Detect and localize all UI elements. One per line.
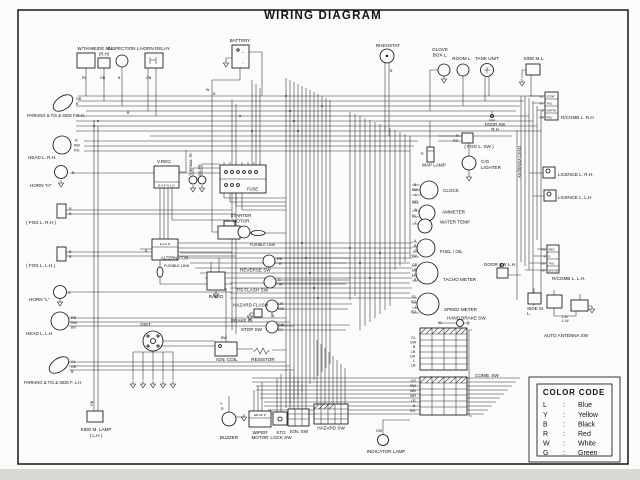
ammeter-gauge (419, 205, 435, 221)
speedometer-gauge (417, 293, 439, 315)
label-stop-sw: STOP SW (241, 327, 263, 332)
rcomb-rh-code: GB (539, 95, 543, 99)
distributor-symbol (143, 331, 163, 351)
wire-code: L (415, 305, 417, 309)
label-fusible-link-a: FUSIBLE LINK (250, 243, 276, 247)
label-oil-pr: OIL PR. (198, 163, 202, 176)
rcomb-lh-code: B (544, 255, 546, 259)
horn-h-symbol (55, 166, 68, 179)
color-code-legend: COLOR CODE L : Blue Y : Yellow B : Black… (529, 377, 620, 462)
label-licence-lh: LICENCE L. L.H (558, 195, 591, 200)
tachometer-gauge (416, 262, 438, 284)
wire-code: WR (410, 394, 416, 398)
wire-code: Y (220, 402, 223, 406)
wire-code: YW (411, 254, 417, 258)
color-code-colon: : (563, 450, 565, 457)
label-room-l: ROOM L. (452, 56, 471, 61)
wire-junctions (93, 95, 381, 299)
wire-code: R (75, 139, 78, 143)
wire-code: LB (412, 268, 417, 272)
rcomb-lh-code: GR (541, 269, 545, 273)
color-code-key: B (543, 422, 548, 429)
wire-code: GB (100, 76, 106, 80)
wire-code: R (279, 262, 282, 266)
color-code-value: Green (578, 450, 598, 457)
label-side-m-lamp-2: ( L.H ) (90, 433, 103, 438)
hand-brake-sw-symbol (457, 320, 464, 327)
fusible-link-b-symbol (157, 267, 163, 277)
door-sw-lh-symbol (497, 268, 508, 278)
label-speed: SPEED METER (444, 307, 478, 312)
label-ts-flash-sw: T/S FLASH SW (236, 288, 269, 293)
label-reverse-sw: REVERSE SW (240, 268, 271, 273)
wire-code: GW (278, 307, 285, 311)
label-dist: DIST. (140, 322, 151, 327)
ground-icon (160, 381, 165, 388)
label-horn-h: HORN "H" (30, 183, 52, 188)
wire-code: YL (438, 321, 442, 325)
ground-icon (241, 414, 246, 421)
label-side-ml-bot-2: L. (527, 311, 531, 316)
ground-icon (519, 79, 524, 86)
wire-code: LG (412, 273, 417, 277)
wire-code: LR (411, 399, 416, 403)
label-fog-lh: ( FOG L. L.H.) (26, 263, 56, 268)
wire-code: GW (278, 323, 285, 327)
ground-icon (130, 381, 135, 388)
wire-code: Y (414, 239, 417, 243)
label-fuel-oil: FUEL / OIL (440, 249, 463, 254)
label-tank-unit: TANK UNIT (475, 56, 499, 61)
label-map-lamp: MAP LAMP (422, 163, 446, 168)
comb-sw-grid-1 (420, 328, 467, 370)
label-fusible-link-b: FUSIBLE LINK (164, 264, 190, 268)
wire-code: R (456, 134, 459, 138)
ground-icon (140, 381, 145, 388)
label-parking-lh: PARKING & T/S & SIDE F. L.H (24, 380, 81, 385)
ground-icon (441, 76, 446, 83)
rcomb-lh-func: REV (549, 248, 555, 252)
glove-box-lamp (438, 64, 450, 76)
wire-code: GB (76, 97, 82, 101)
room-lamp (457, 64, 469, 76)
wire-code: RG (74, 149, 80, 153)
wire-code: BW (221, 336, 227, 340)
wire-code: RW (71, 321, 78, 325)
wire-code: B (413, 345, 416, 349)
label-water-temp: WATER TEMP (440, 220, 470, 225)
label-cg-2: LIGHTER (481, 165, 502, 170)
wire-code: B (213, 92, 216, 96)
wire-code: GY (411, 379, 417, 383)
label-buzzer: BUZZER (220, 435, 239, 440)
wire-code: RY (71, 326, 77, 330)
water-temp-gauge (418, 219, 432, 233)
parking-lamp-rh (50, 91, 75, 114)
label-hazard-flash: HAZARD FLASH (233, 303, 268, 308)
wire-code: R (69, 207, 72, 211)
wire-code: B (118, 76, 121, 80)
fuel-oil-gauge (417, 239, 435, 257)
label-resistor: RESISTOR (251, 357, 275, 362)
color-code-key: L (543, 402, 547, 409)
rcomb-rh-func: EARTH (547, 109, 557, 113)
label-side-ml-rh-sub: (R.H) (99, 52, 110, 57)
wire-code: GW (376, 429, 383, 433)
parking-lamp-lh (46, 353, 71, 376)
rcomb-lh-func: B/STOP (549, 269, 560, 273)
color-code-value: Black (578, 422, 596, 429)
wire-code: WR (412, 200, 418, 204)
rcomb-lh-code: GW (541, 262, 546, 266)
wire-code: WB (410, 389, 416, 393)
wire-code: GL (71, 360, 76, 364)
label-comb-sw: COMB. SW (475, 373, 499, 378)
label-brake-in: BRAKE IN (231, 318, 252, 323)
label-side-ml-top: SIDE M.L. (524, 56, 545, 61)
resistor-symbol (253, 348, 270, 354)
label-wiper-2: MOTOR (251, 435, 269, 440)
rcomb-rh-func: TAIL (547, 102, 553, 106)
fog-lamp-rh (57, 204, 66, 218)
wire-code: W (279, 283, 283, 287)
side-marker-lamp-box (87, 411, 103, 422)
label-inspection: INSPECTION L. (107, 46, 140, 51)
ign-sw-grid (288, 409, 309, 426)
label-rcomb-rh: R/COMB L. R.H (561, 115, 594, 120)
label-rcomb-lh: R/COMB L. L.H. (552, 276, 585, 281)
battery-plus: + (242, 50, 244, 54)
component-labels: W/TANK SIDE M.L. (R.H) INSPECTION L. HOR… (24, 38, 594, 454)
thermal-transmitter (189, 176, 197, 184)
label-ign-sw: IGN. SW (290, 429, 309, 434)
ground-icon (150, 381, 155, 388)
label-tacho: TACHO METER (443, 277, 477, 282)
label-glove-1: GLOVE (432, 47, 448, 52)
label-thermal-tr: THERMAL TR. (189, 152, 193, 176)
wire-code: RL (82, 76, 87, 80)
head-lamp-rh (53, 136, 71, 154)
ground-icon (170, 381, 175, 388)
rcomb-rh-func: STOP (547, 95, 555, 99)
ground-icon (190, 185, 195, 192)
wire-code: LW (410, 355, 416, 359)
map-lamp-box (427, 147, 434, 162)
color-code-value: White (578, 441, 596, 448)
label-fog-l-sw: ( FOG L. SW ) (464, 144, 494, 149)
wire-code: GR (71, 365, 77, 369)
label-glove-2: BOX L. (433, 53, 448, 58)
wire-code: B (145, 249, 148, 253)
label-head-lh: HEAD L. L.H (26, 331, 52, 336)
rcomb-rh-func: REV (547, 116, 553, 120)
label-stg-2: LOCK SW (270, 435, 292, 440)
side-ml-bot-box (528, 293, 541, 304)
starter-motor-body (218, 226, 240, 239)
label-starter-2: MOTOR (232, 219, 250, 224)
wire-code: RW (74, 144, 81, 148)
fog-lamp-lh (57, 247, 66, 261)
wire-code: W (414, 208, 418, 212)
label-parking-rh: PARKING & T/S & SIDE F.R.H. (27, 113, 85, 118)
label-hazard-sw: HAZARD SW (317, 426, 345, 431)
scan-edge-band (0, 469, 640, 480)
oil-pressure-sender (198, 176, 206, 184)
battery-minus: − (242, 61, 244, 65)
wire-code: RL (412, 214, 417, 218)
wiring-diagram-canvas: WIRING DIAGRAM (0, 0, 640, 480)
indicator-lamp-symbol (378, 435, 389, 446)
color-code-key: G (543, 450, 548, 457)
alternator-terminals: E A F N (160, 242, 171, 246)
auto-antenna-box-1 (547, 295, 562, 308)
wire-code: Y (414, 221, 417, 225)
label-horn-relay: HORN RELAY (140, 46, 170, 51)
wire-code: LB (411, 364, 416, 368)
buzzer-symbol (222, 412, 236, 426)
horn-l-symbol (54, 286, 67, 299)
wire-code: B (414, 244, 417, 248)
wire-code: GW (410, 341, 417, 345)
side-ml-top-box (526, 64, 540, 75)
rcomb-lh-code: RB (541, 248, 545, 252)
label-auto-antenna: AUTO ANTENNA SW (544, 333, 589, 338)
wire-code: RG (411, 300, 417, 304)
clock-gauge (420, 181, 438, 199)
wire-code: R (69, 255, 72, 259)
label-ammeter: AMMETER (442, 210, 466, 215)
brake-ind-box (254, 309, 262, 317)
wire-code: GB (90, 400, 94, 406)
wire-code: B (127, 111, 130, 115)
label-door-sw-rh-2: R.H (491, 127, 498, 132)
ignition-coil-box (215, 342, 237, 356)
head-lamp-lh (51, 312, 69, 330)
label-licence-rh: LICENCE L. R.H. (558, 172, 593, 177)
label-fog-rh: ( FOG L. R.H ) (26, 220, 56, 225)
color-code-key: R (543, 431, 548, 438)
label-door-sw-lh: DOOR SW L.H. (484, 262, 516, 267)
rcomb-rh-code: GR (539, 102, 543, 106)
label-alternator: ALTERNATOR (161, 256, 188, 261)
ground-icon (223, 60, 228, 67)
wire-code: RG (410, 409, 416, 413)
wire-code: L (415, 193, 417, 197)
cig-lighter-symbol (462, 156, 476, 170)
wire-code: B (390, 69, 393, 73)
wire-code: L-W (562, 319, 569, 323)
ground-icon (589, 306, 594, 313)
color-code-colon: : (563, 441, 565, 448)
label-horn-l: HORN "L" (29, 297, 50, 302)
wire-code: B (71, 370, 74, 374)
label-ign-coil: IGN. COIL (216, 357, 238, 362)
fog-lamp-sw-box (462, 133, 473, 143)
label-side-m-lamp-1: SIDE M. LAMP (81, 427, 112, 432)
starter-motor-end (238, 226, 250, 238)
wire-code: GL (411, 336, 416, 340)
wire-code: R (421, 152, 424, 156)
color-code-title: COLOR CODE (543, 388, 605, 397)
wire-code: B (414, 278, 417, 282)
w-tank-box (77, 53, 95, 68)
ground-icon (58, 180, 63, 187)
color-code-colon: : (563, 431, 565, 438)
horn-relay-box (145, 53, 163, 68)
reverse-sw-symbol (263, 255, 275, 267)
ground-icon (466, 174, 471, 181)
ts-flasher-symbol (264, 276, 276, 288)
wire-code: RL (412, 295, 417, 299)
stg-lock-sw-box (273, 412, 287, 425)
page-title: WIRING DIAGRAM (264, 10, 382, 22)
stop-sw-symbol (266, 321, 278, 333)
auto-antenna-box-2 (571, 300, 588, 311)
fusible-link-a-symbol (251, 231, 265, 236)
battery-box (232, 45, 249, 68)
wire-code: LW (278, 302, 284, 306)
ground-icon (199, 185, 204, 192)
label-v-reg: V.REG. (157, 159, 172, 164)
label-starter-1: STARTER (230, 213, 252, 218)
wire-code: LB (411, 350, 416, 354)
label-antenna-lead: ANTENNA LEAD (517, 146, 522, 178)
wire-code: GB (146, 76, 152, 80)
rcomb-lh-func: E (549, 255, 551, 259)
color-code-key: W (543, 441, 550, 448)
inspection-lamp (116, 55, 128, 67)
radio-box (207, 272, 225, 290)
wire-code: YL (271, 314, 275, 318)
wiring-diagram-page: WIRING DIAGRAM (0, 0, 640, 480)
wire-code: B (76, 102, 79, 106)
wire-code: RW (412, 188, 419, 192)
wire-code: RW (410, 384, 417, 388)
wires-rightmid-vertical (350, 112, 410, 330)
wire-code: RG (453, 139, 459, 143)
color-code-value: Red (578, 431, 591, 438)
label-clock: CLOCK (443, 188, 460, 193)
label-fuse: FUSE (247, 187, 258, 192)
wire-code: G (278, 278, 281, 282)
wire-code: RB (71, 316, 77, 320)
color-code-colon: : (563, 412, 565, 419)
color-code-value: Yellow (578, 412, 599, 419)
label-radio: RADIO (209, 294, 224, 299)
wires-mid-horizontal (170, 243, 412, 298)
wire-code: G (414, 249, 417, 253)
label-head-rh: HEAD L. R.H. (28, 155, 56, 160)
wire-code: GB (412, 263, 418, 267)
label-rheostat: RHEOSTAT (376, 43, 401, 48)
label-battery: BATTERY (230, 38, 251, 43)
ground-icon (57, 299, 62, 306)
wire-code: R (221, 407, 224, 411)
wire-code: G (68, 291, 71, 295)
label-cg-1: C/G (481, 159, 490, 164)
wire-code: GY (278, 328, 284, 332)
side-ml-rh-box (98, 58, 110, 68)
rcomb-lh-func: TAIL (549, 262, 555, 266)
rcomb-rh-code: B (542, 109, 544, 113)
wire-code: RG (411, 310, 417, 314)
wire-code: RB (277, 257, 283, 261)
label-hand-brake: HAND BRAKE SW. (447, 316, 487, 321)
color-code-key: Y (543, 412, 548, 419)
wiper-terminals: EB AF P (254, 413, 266, 417)
color-code-colon: : (563, 422, 565, 429)
vreg-terminals: E A F N L G (158, 184, 175, 188)
wire-code: L (413, 359, 415, 363)
color-code-colon: : (563, 402, 565, 409)
rcomb-rh-code: RB (539, 116, 543, 120)
comb-sw-grid-2 (420, 377, 467, 415)
label-indicator: INDICATOR LAMP (367, 449, 406, 454)
color-code-value: Blue (578, 402, 592, 409)
wire-code: W (206, 88, 210, 92)
